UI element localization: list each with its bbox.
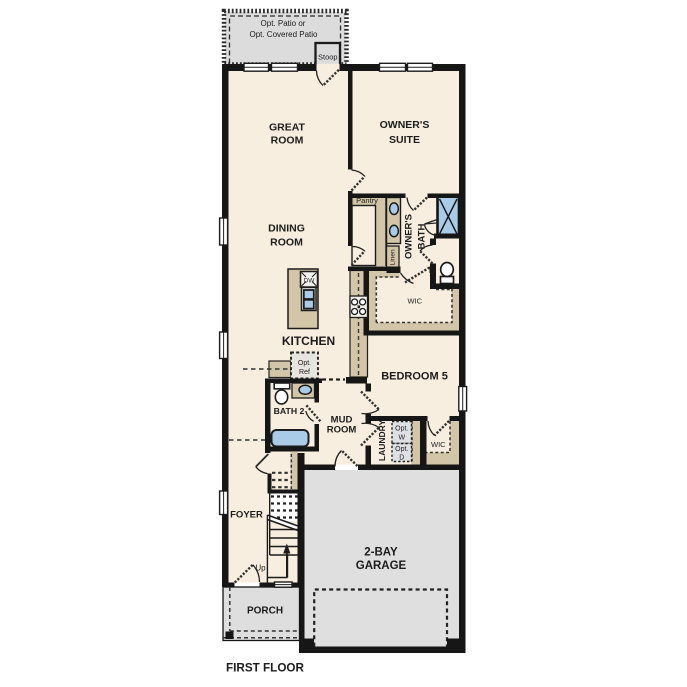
svg-text:DW: DW bbox=[304, 278, 316, 285]
svg-text:WIC: WIC bbox=[431, 440, 446, 449]
svg-text:Opt.: Opt. bbox=[395, 426, 408, 433]
svg-text:Opt. Covered Patio: Opt. Covered Patio bbox=[249, 30, 318, 39]
svg-text:BATH: BATH bbox=[417, 224, 428, 250]
svg-text:FIRST FLOOR: FIRST FLOOR bbox=[226, 662, 304, 675]
svg-text:Opt.: Opt. bbox=[298, 360, 311, 367]
svg-text:Ref: Ref bbox=[299, 369, 310, 376]
svg-text:Opt. Patio or: Opt. Patio or bbox=[261, 19, 306, 28]
svg-text:LAUNDRY: LAUNDRY bbox=[377, 420, 387, 462]
svg-text:GREAT: GREAT bbox=[269, 122, 306, 134]
svg-text:WIC: WIC bbox=[408, 297, 423, 306]
svg-text:ROOM: ROOM bbox=[271, 135, 304, 147]
svg-text:FOYER: FOYER bbox=[230, 510, 263, 521]
svg-text:OWNER'S: OWNER'S bbox=[404, 214, 415, 259]
svg-text:SUITE: SUITE bbox=[389, 134, 420, 146]
svg-text:W: W bbox=[398, 435, 405, 442]
svg-text:ROOM: ROOM bbox=[327, 425, 357, 436]
svg-text:ROOM: ROOM bbox=[270, 237, 303, 249]
svg-text:KITCHEN: KITCHEN bbox=[282, 334, 335, 348]
svg-text:GARAGE: GARAGE bbox=[356, 560, 407, 572]
svg-text:Opt.: Opt. bbox=[395, 446, 408, 453]
svg-text:D: D bbox=[399, 455, 404, 462]
svg-text:Stoop: Stoop bbox=[318, 53, 338, 62]
svg-text:DINING: DINING bbox=[268, 223, 305, 235]
svg-text:BEDROOM 5: BEDROOM 5 bbox=[381, 371, 448, 383]
svg-text:BATH 2: BATH 2 bbox=[274, 406, 305, 416]
svg-text:OWNER'S: OWNER'S bbox=[380, 119, 430, 131]
svg-text:Linen: Linen bbox=[390, 249, 397, 265]
svg-text:PORCH: PORCH bbox=[247, 606, 283, 617]
svg-text:2-BAY: 2-BAY bbox=[364, 547, 398, 559]
